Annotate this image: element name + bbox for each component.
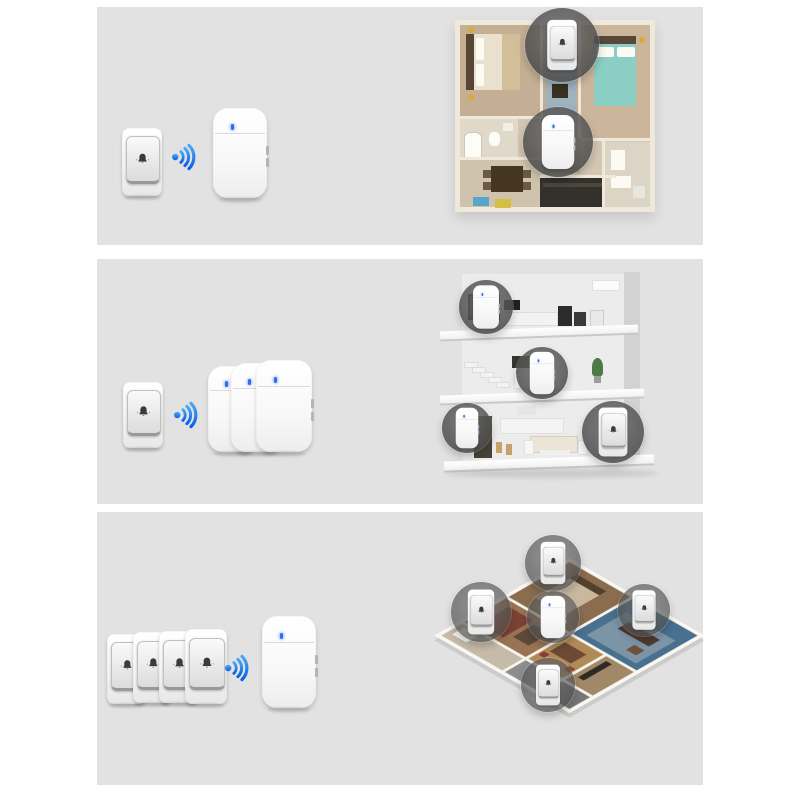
led-indicator bbox=[538, 359, 539, 362]
led-indicator bbox=[248, 379, 251, 385]
bell-icon bbox=[476, 602, 487, 617]
doorbell-receiver bbox=[456, 408, 479, 449]
receiver-placement-circle bbox=[527, 591, 579, 643]
wifi-signal-icon bbox=[171, 141, 201, 173]
side-button bbox=[565, 620, 566, 624]
side-button bbox=[478, 425, 479, 429]
doorbell-receiver bbox=[542, 115, 574, 169]
transmitter-placement-circle bbox=[525, 8, 599, 82]
device-placement-overlay bbox=[455, 20, 655, 212]
bell-push-button bbox=[189, 638, 225, 690]
bell-icon bbox=[640, 602, 650, 615]
side-button bbox=[311, 399, 314, 408]
bell-icon bbox=[198, 651, 216, 676]
transmitter-placement-circle bbox=[582, 401, 644, 463]
side-button bbox=[565, 614, 566, 618]
side-button bbox=[257, 414, 260, 423]
doorbell-receiver bbox=[541, 596, 565, 638]
led-indicator bbox=[231, 124, 234, 130]
led-indicator bbox=[274, 377, 277, 383]
doorbell-transmitter bbox=[185, 629, 227, 704]
doorbell-transmitter bbox=[632, 590, 655, 629]
led-indicator bbox=[482, 293, 483, 296]
bell-icon bbox=[134, 148, 151, 171]
receiver-placement-circle bbox=[459, 280, 513, 334]
device-placement-overlay bbox=[428, 515, 705, 750]
side-button bbox=[266, 146, 269, 155]
receiver-placement-circle bbox=[523, 107, 593, 177]
bell-push-button bbox=[470, 595, 493, 626]
side-button bbox=[478, 430, 479, 434]
doorbell-transmitter bbox=[468, 590, 494, 635]
bell-push-button bbox=[543, 547, 565, 576]
transmitter-placement-circle bbox=[618, 584, 670, 636]
side-button bbox=[315, 668, 318, 677]
three-story-house-image bbox=[440, 266, 665, 480]
decor bbox=[264, 642, 315, 643]
bell-icon bbox=[608, 422, 620, 438]
doorbell-receiver bbox=[262, 616, 316, 708]
side-button bbox=[498, 304, 499, 308]
doorbell-receiver bbox=[208, 366, 258, 452]
side-button bbox=[282, 413, 285, 422]
led-indicator bbox=[280, 633, 283, 639]
transmitter-placement-circle bbox=[451, 582, 511, 642]
side-button bbox=[311, 412, 314, 421]
led-indicator bbox=[552, 125, 554, 129]
bell-push-button bbox=[126, 136, 161, 184]
side-button bbox=[574, 138, 576, 143]
doorbell-transmitter bbox=[123, 382, 163, 448]
side-button bbox=[315, 655, 318, 664]
doorbell-transmitter bbox=[159, 631, 199, 703]
bell-icon bbox=[543, 676, 553, 690]
decor bbox=[215, 133, 266, 134]
bell-push-button bbox=[538, 669, 559, 698]
panel-one-to-three bbox=[97, 259, 703, 504]
doorbell-transmitter bbox=[536, 665, 560, 706]
bell-push-button bbox=[601, 413, 626, 447]
doorbell-receiver bbox=[213, 108, 267, 198]
apartment-floor-plan-image bbox=[455, 20, 655, 212]
side-button bbox=[554, 370, 555, 374]
bell-push-button bbox=[111, 642, 145, 691]
isometric-floor-plan-image bbox=[428, 515, 705, 750]
bell-icon bbox=[119, 654, 136, 677]
doorbell-transmitter bbox=[541, 542, 566, 584]
side-button bbox=[266, 158, 269, 167]
bell-icon bbox=[556, 34, 569, 51]
doorbell-receiver bbox=[231, 363, 283, 452]
side-button bbox=[282, 400, 285, 409]
bell-push-button bbox=[137, 641, 171, 690]
device-placement-overlay bbox=[440, 266, 665, 480]
doorbell-transmitter bbox=[599, 408, 628, 457]
wifi-signal-icon bbox=[224, 652, 254, 684]
side-button bbox=[554, 376, 555, 380]
doorbell-transmitter bbox=[107, 634, 146, 704]
wifi-signal-icon bbox=[173, 399, 203, 431]
panel-one-to-one bbox=[97, 7, 703, 245]
decor bbox=[258, 386, 311, 387]
side-button bbox=[574, 145, 576, 150]
doorbell-transmitter bbox=[122, 128, 162, 196]
bell-push-button bbox=[163, 640, 198, 690]
bell-push-button bbox=[550, 26, 576, 61]
bell-push-button bbox=[634, 595, 654, 623]
bell-icon bbox=[548, 554, 559, 568]
doorbell-receiver bbox=[530, 352, 554, 394]
decor bbox=[543, 130, 573, 131]
receiver-placement-circle bbox=[516, 347, 568, 399]
doorbell-transmitter bbox=[547, 20, 577, 70]
doorbell-receiver bbox=[256, 360, 312, 452]
doorbell-transmitter bbox=[133, 632, 172, 703]
bell-push-button bbox=[127, 390, 162, 436]
product-infographic bbox=[0, 0, 800, 800]
panel-four-to-one bbox=[97, 512, 703, 785]
transmitter-placement-circle bbox=[521, 658, 575, 712]
decor bbox=[210, 390, 257, 391]
side-button bbox=[257, 402, 260, 411]
doorbell-receiver bbox=[473, 285, 499, 328]
bell-icon bbox=[135, 401, 152, 423]
led-indicator bbox=[225, 381, 228, 387]
transmitter-placement-circle bbox=[525, 535, 581, 591]
side-button bbox=[498, 310, 499, 314]
receiver-placement-circle bbox=[442, 403, 492, 453]
decor bbox=[233, 388, 282, 389]
bell-icon bbox=[171, 652, 188, 676]
bell-icon bbox=[145, 652, 162, 676]
led-indicator bbox=[463, 415, 464, 418]
led-indicator bbox=[549, 603, 550, 606]
